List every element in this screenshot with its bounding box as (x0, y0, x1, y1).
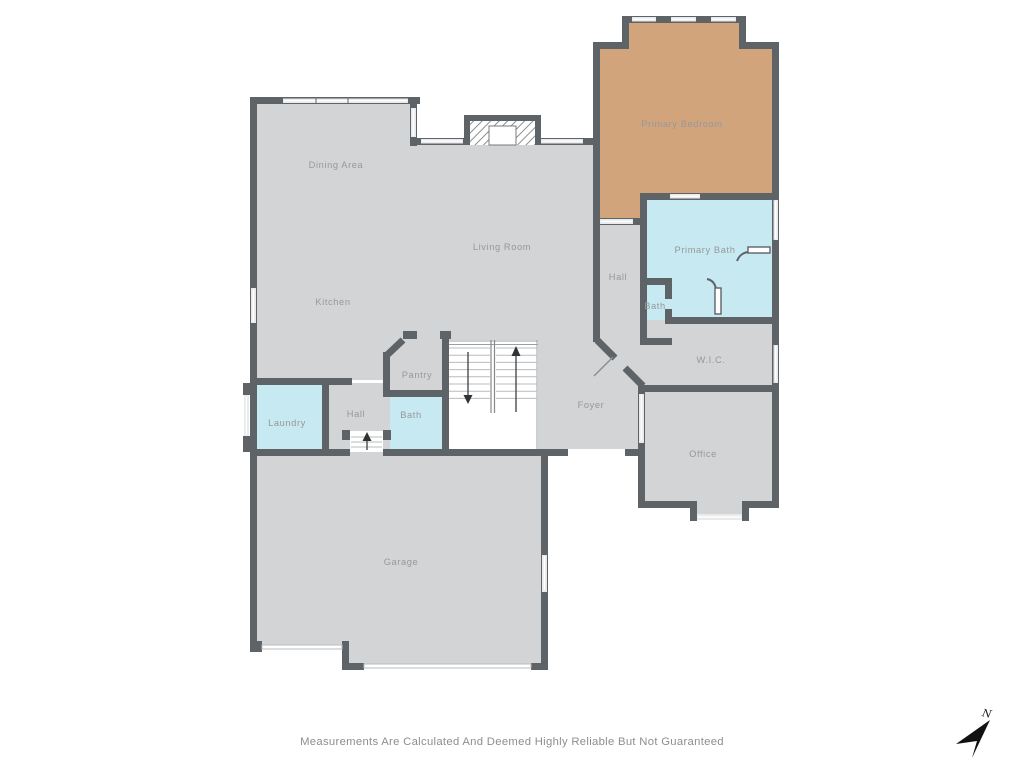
room-office-floor (641, 389, 776, 505)
dining-side-window (411, 108, 416, 137)
room-label-primary-bedroom: Primary Bedroom (641, 119, 722, 129)
room-label-foyer: Foyer (578, 400, 605, 410)
room-label-hall-lower: Hall (347, 409, 365, 419)
disclaimer-text: Measurements Are Calculated And Deemed H… (300, 736, 724, 748)
main-staircase (446, 340, 538, 452)
room-dining-kitchen-floor (253, 100, 413, 380)
bedroom-hall-opening (600, 219, 633, 224)
garage-door-right (364, 664, 531, 668)
room-label-bath-lower: Bath (400, 410, 422, 420)
garage-right-window (542, 555, 547, 592)
fireplace (464, 115, 541, 145)
room-label-kitchen: Kitchen (315, 297, 350, 307)
floor-plan-page: Dining Area Kitchen Living Room Primary … (0, 0, 1024, 768)
kitchen-window (251, 288, 256, 323)
room-bath-lower-floor (390, 397, 445, 450)
room-label-primary-bath: Primary Bath (675, 245, 736, 255)
north-arrow-icon: N (956, 707, 993, 758)
floor-plan: Dining Area Kitchen Living Room Primary … (0, 0, 1024, 768)
room-label-dining-area: Dining Area (309, 160, 364, 170)
wic-right-window (774, 345, 779, 383)
room-label-bath-upper: Bath (644, 301, 666, 311)
room-label-garage: Garage (384, 557, 419, 567)
room-label-hall-upper: Hall (609, 272, 627, 282)
laundry-window (244, 395, 249, 436)
room-label-living-room: Living Room (473, 242, 531, 252)
primary-bath-right-window (774, 200, 779, 240)
room-foyer-floor (538, 340, 645, 449)
bedroom-bay-windows (632, 17, 736, 22)
living-window-left (421, 139, 463, 144)
room-label-wic: W.I.C. (697, 355, 726, 365)
room-label-pantry: Pantry (402, 370, 432, 380)
office-bay-window (697, 514, 742, 520)
garage-steps (350, 431, 383, 452)
stairwell (446, 340, 538, 452)
foyer-office-opening (639, 394, 644, 443)
room-label-office: Office (689, 449, 717, 459)
room-label-laundry: Laundry (268, 418, 306, 428)
primary-bath-top-window (670, 194, 700, 199)
garage-door-left (262, 645, 342, 649)
living-window-right (541, 139, 583, 144)
north-label: N (980, 707, 993, 721)
